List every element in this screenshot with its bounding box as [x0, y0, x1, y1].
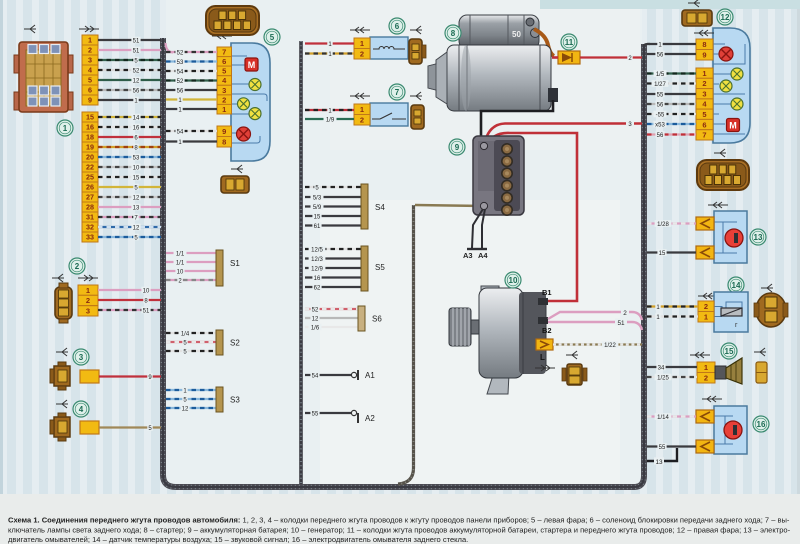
svg-text:9: 9	[88, 96, 92, 105]
svg-text:52: 52	[177, 50, 184, 56]
svg-text:S2: S2	[230, 339, 240, 348]
svg-text:8: 8	[222, 137, 226, 146]
svg-text:B2: B2	[542, 326, 552, 335]
svg-text:5: 5	[702, 110, 706, 119]
svg-text:14: 14	[732, 281, 741, 290]
svg-text:26: 26	[86, 183, 94, 192]
svg-text:2: 2	[704, 373, 708, 382]
svg-text:2: 2	[704, 302, 708, 311]
svg-text:3: 3	[88, 56, 92, 65]
svg-text:13: 13	[655, 459, 663, 466]
svg-text:10: 10	[509, 276, 518, 285]
svg-text:9: 9	[702, 51, 706, 60]
svg-text:52: 52	[133, 68, 140, 74]
svg-text:1: 1	[702, 69, 706, 78]
svg-text:25: 25	[86, 173, 94, 182]
svg-text:A1: A1	[365, 371, 375, 380]
svg-text:A2: A2	[365, 414, 375, 423]
svg-text:5: 5	[270, 33, 275, 42]
svg-text:54: 54	[177, 129, 184, 135]
svg-text:1/28: 1/28	[657, 222, 669, 228]
svg-text:53: 53	[133, 155, 140, 161]
svg-text:12: 12	[721, 13, 730, 22]
svg-text:12/5: 12/5	[311, 247, 323, 253]
svg-text:8: 8	[702, 40, 706, 49]
svg-text:52: 52	[177, 79, 184, 85]
svg-text:2: 2	[702, 79, 706, 88]
svg-text:12: 12	[312, 316, 319, 322]
svg-text:56: 56	[133, 88, 140, 94]
svg-text:15: 15	[725, 347, 734, 356]
svg-text:2: 2	[360, 50, 364, 59]
svg-text:1/22: 1/22	[604, 343, 616, 349]
svg-text:12/9: 12/9	[311, 266, 323, 272]
svg-text:12: 12	[133, 195, 140, 201]
svg-text:51: 51	[143, 308, 150, 314]
svg-text:10: 10	[143, 288, 150, 294]
svg-text:54: 54	[177, 69, 184, 75]
svg-text:г: г	[735, 322, 738, 329]
svg-text:4: 4	[79, 405, 84, 414]
svg-text:1: 1	[360, 105, 364, 114]
svg-text:28: 28	[86, 203, 94, 212]
svg-text:3: 3	[222, 86, 226, 95]
svg-text:3: 3	[79, 353, 84, 362]
svg-text:1/25: 1/25	[657, 375, 669, 381]
svg-text:54: 54	[312, 373, 319, 379]
svg-text:12/3: 12/3	[311, 257, 323, 263]
svg-text:ключатель лампы света заднего: ключатель лампы света заднего хода; 8 – …	[8, 526, 791, 535]
svg-text:15: 15	[86, 113, 94, 122]
svg-text:двигатель омывателей; 14 – дат: двигатель омывателей; 14 – датчик темпер…	[8, 535, 468, 544]
svg-text:M: M	[729, 120, 737, 130]
svg-text:55: 55	[659, 445, 666, 451]
svg-text:5: 5	[88, 76, 92, 85]
svg-text:33: 33	[86, 233, 94, 242]
svg-text:16: 16	[314, 276, 321, 282]
svg-text:1: 1	[704, 312, 708, 321]
svg-text:1: 1	[88, 36, 92, 45]
svg-text:1/4: 1/4	[181, 331, 190, 337]
svg-text:51: 51	[133, 38, 140, 44]
svg-text:1: 1	[360, 39, 364, 48]
svg-text:61: 61	[314, 224, 321, 230]
svg-text:6: 6	[395, 22, 400, 31]
svg-text:1/27: 1/27	[654, 82, 666, 88]
svg-text:A4: A4	[478, 251, 488, 260]
svg-text:16: 16	[757, 420, 766, 429]
svg-text:S5: S5	[375, 263, 385, 272]
svg-text:9: 9	[222, 127, 226, 136]
svg-text:16: 16	[86, 123, 94, 132]
svg-text:1/1: 1/1	[176, 260, 185, 266]
svg-text:13: 13	[754, 233, 763, 242]
svg-text:31: 31	[86, 213, 94, 222]
svg-text:Схема 1. Соединения переднего: Схема 1. Соединения переднего жгута пров…	[8, 516, 790, 525]
svg-text:15: 15	[659, 251, 666, 257]
svg-text:50: 50	[512, 30, 521, 39]
svg-text:S4: S4	[375, 203, 385, 212]
svg-text:13: 13	[133, 205, 140, 211]
svg-text:6: 6	[702, 120, 706, 129]
svg-text:53: 53	[177, 60, 184, 66]
svg-text:5/9: 5/9	[313, 205, 322, 211]
svg-text:27: 27	[86, 193, 94, 202]
svg-text:-55: -55	[656, 112, 665, 118]
svg-text:56: 56	[177, 88, 184, 94]
svg-text:4: 4	[88, 66, 92, 75]
svg-text:55: 55	[312, 411, 319, 417]
svg-text:1/1: 1/1	[176, 251, 185, 257]
svg-text:51: 51	[133, 48, 140, 54]
svg-text:1/9: 1/9	[326, 117, 335, 123]
svg-text:12: 12	[133, 225, 140, 231]
svg-text:2: 2	[623, 310, 627, 317]
svg-text:1: 1	[222, 105, 226, 114]
svg-text:10: 10	[133, 165, 140, 171]
svg-text:L: L	[540, 353, 545, 362]
svg-text:12: 12	[133, 78, 140, 84]
svg-text:3: 3	[702, 89, 706, 98]
svg-text:5: 5	[222, 67, 226, 76]
svg-text:7: 7	[702, 131, 706, 140]
svg-text:15: 15	[133, 175, 140, 181]
svg-text:5/3: 5/3	[313, 195, 322, 201]
svg-text:A3: A3	[463, 251, 473, 260]
svg-text:2: 2	[75, 262, 80, 271]
svg-text:S3: S3	[230, 396, 240, 405]
svg-text:x53: x53	[655, 122, 665, 128]
svg-text:7: 7	[222, 48, 226, 57]
svg-text:2: 2	[360, 116, 364, 125]
svg-text:19: 19	[86, 143, 94, 152]
svg-text:2: 2	[86, 296, 90, 305]
svg-text:12: 12	[182, 406, 189, 412]
svg-text:15: 15	[314, 214, 321, 220]
svg-text:16: 16	[133, 125, 140, 131]
svg-text:1/5: 1/5	[656, 72, 665, 78]
svg-text:7: 7	[395, 88, 400, 97]
svg-text:14: 14	[133, 115, 140, 121]
svg-text:6: 6	[222, 57, 226, 66]
svg-text:11: 11	[565, 38, 574, 47]
svg-text:51: 51	[617, 320, 625, 327]
svg-text:56: 56	[657, 133, 664, 139]
svg-text:20: 20	[86, 153, 94, 162]
svg-text:2: 2	[88, 46, 92, 55]
svg-text:9: 9	[455, 143, 460, 152]
svg-text:22: 22	[86, 163, 94, 172]
svg-text:32: 32	[86, 223, 94, 232]
svg-text:1: 1	[86, 286, 90, 295]
svg-text:55: 55	[657, 92, 664, 98]
svg-text:1/14: 1/14	[657, 415, 669, 421]
svg-text:1/6: 1/6	[311, 325, 320, 331]
svg-text:2: 2	[222, 95, 226, 104]
svg-text:18: 18	[86, 133, 94, 142]
svg-text:10: 10	[177, 269, 184, 275]
svg-text:52: 52	[312, 307, 319, 313]
svg-text:8: 8	[451, 29, 456, 38]
svg-text:6: 6	[88, 86, 92, 95]
svg-text:1: 1	[63, 124, 68, 133]
svg-text:S1: S1	[230, 259, 240, 268]
svg-text:34: 34	[658, 365, 665, 371]
svg-text:62: 62	[314, 285, 321, 291]
svg-text:3: 3	[86, 307, 90, 316]
svg-text:56: 56	[657, 52, 664, 58]
svg-text:56: 56	[657, 102, 664, 108]
svg-text:M: M	[248, 60, 256, 70]
svg-text:B1: B1	[542, 288, 552, 297]
svg-text:S6: S6	[372, 315, 382, 324]
svg-text:1: 1	[704, 363, 708, 372]
